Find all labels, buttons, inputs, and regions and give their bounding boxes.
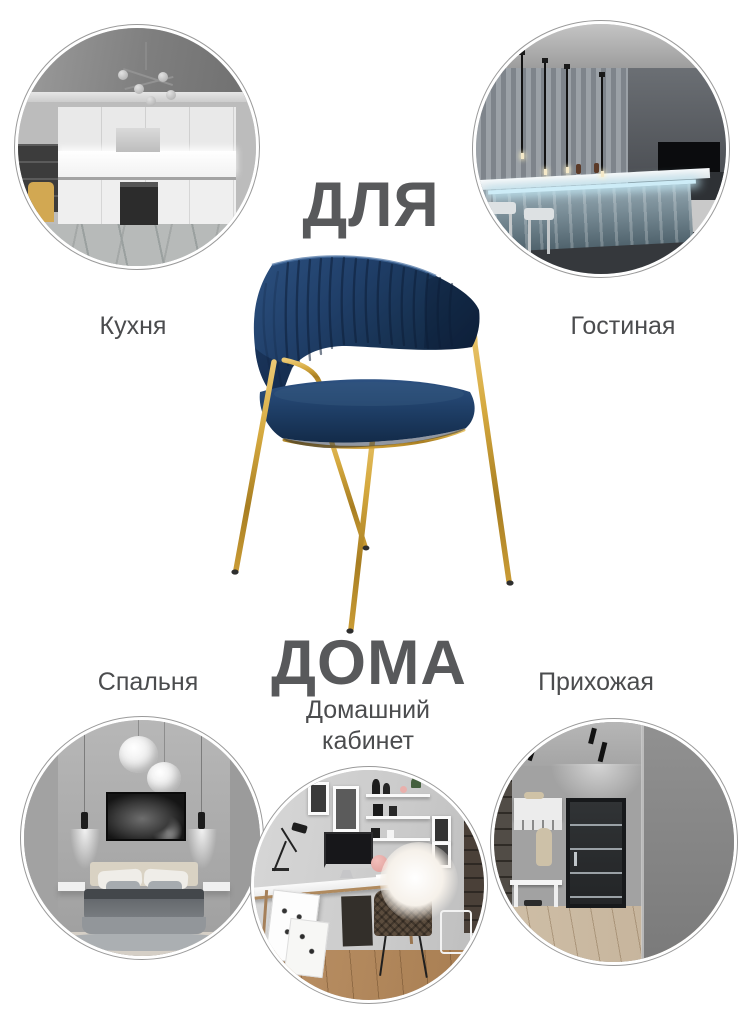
framed-portrait xyxy=(333,786,359,832)
bedroom-side-wall xyxy=(24,720,58,956)
bedside-pendant-cord xyxy=(84,726,85,812)
sphere-pendant-lamp xyxy=(147,762,181,794)
shelf-plant xyxy=(411,777,421,788)
under-desk-drawer xyxy=(341,895,373,946)
pendant-rod xyxy=(566,69,568,169)
desktop-monitor xyxy=(324,832,373,868)
home-office-label: Домашний кабинет xyxy=(293,695,443,756)
leaning-poster xyxy=(284,918,330,978)
bedside-pendant-lamp xyxy=(81,812,88,829)
home-office-photo xyxy=(254,770,484,1000)
pendant-light-tip xyxy=(544,169,547,175)
bedroom-photo-circle xyxy=(20,716,264,960)
counter-bottle xyxy=(576,164,581,174)
pendant-light-tip xyxy=(601,171,604,177)
counter-bottle xyxy=(594,163,599,173)
bedside-pendant-lamp xyxy=(198,812,205,829)
bench-leg xyxy=(514,885,518,907)
shoe-rack xyxy=(494,780,512,908)
shelf-box xyxy=(373,804,383,816)
wall-artwork xyxy=(106,792,186,841)
kitchen-hood xyxy=(116,128,160,152)
hanging-coat xyxy=(536,828,552,866)
pendant-rod xyxy=(601,77,603,173)
kitchen-photo-circle xyxy=(14,24,260,270)
shelf-box xyxy=(389,806,397,816)
bed-base xyxy=(82,917,206,934)
bedside-pendant-cord xyxy=(201,726,202,812)
bar-stool xyxy=(524,208,554,220)
living-room-label: Гостиная xyxy=(571,311,676,342)
bench-leg xyxy=(554,885,558,907)
framed-print xyxy=(308,782,329,815)
chair-gold-front-legs xyxy=(236,362,274,570)
chandelier-bulb xyxy=(134,84,144,94)
living-tv xyxy=(658,142,720,172)
kitchen-yellow-chair xyxy=(28,182,54,222)
wall-artwork-image xyxy=(108,794,184,839)
framed-print xyxy=(432,816,451,844)
shelf-mug xyxy=(387,830,394,838)
floating-nightstand xyxy=(203,882,230,891)
door-handle xyxy=(574,852,577,866)
product-chair-image xyxy=(224,248,520,644)
wall-shelf xyxy=(366,838,430,841)
floating-nightstand xyxy=(58,882,85,891)
pendant-rod xyxy=(544,63,546,171)
home-office-photo-circle xyxy=(250,766,488,1004)
pendant-light-tip xyxy=(521,153,524,159)
kitchen-label: Кухня xyxy=(100,311,167,342)
chair-feet xyxy=(231,546,513,634)
living-room-photo-circle xyxy=(472,20,730,278)
hallway-wardrobe-wall xyxy=(642,722,734,962)
bar-stool-legs xyxy=(528,220,550,254)
chair-backrest xyxy=(254,256,480,400)
shelf-vase xyxy=(372,779,380,794)
bar-stool-legs xyxy=(490,214,512,248)
chandelier-stem xyxy=(145,42,147,70)
front-door xyxy=(570,802,622,904)
wire-side-table xyxy=(440,910,472,954)
bar-stool xyxy=(486,202,516,214)
kitchen-backsplash xyxy=(58,151,236,178)
bar-counter-base xyxy=(493,184,694,252)
kitchen-oven xyxy=(120,182,158,225)
pendant-light-tip xyxy=(566,167,569,173)
hallway-photo-circle xyxy=(490,718,738,966)
bedroom-photo xyxy=(24,720,260,956)
headline-dlya: ДЛЯ xyxy=(302,174,439,237)
bedroom-label: Спальня xyxy=(98,667,198,698)
sheepskin-throw xyxy=(380,842,458,922)
pendant-rod xyxy=(521,55,523,155)
wall-shelf xyxy=(366,794,430,797)
shelf-hat xyxy=(524,792,544,799)
infographic-canvas: ДЛЯ ДОМА Кухня Гостиная Спальня Домашний… xyxy=(0,0,740,1032)
kitchen-tile-floor xyxy=(18,224,256,266)
chandelier-bulb xyxy=(118,70,128,80)
pendant-cord xyxy=(164,720,165,764)
wall-shelf xyxy=(366,816,430,819)
shoes-under-bench xyxy=(524,900,542,906)
chandelier-bulb xyxy=(146,96,156,106)
bed-blanket-fold xyxy=(84,889,204,899)
chandelier-bulb xyxy=(158,72,168,82)
shelf-vase xyxy=(383,783,390,794)
bedroom-rug xyxy=(52,933,234,951)
pink-ornament xyxy=(400,786,407,793)
hallway-label: Прихожая xyxy=(538,667,654,698)
chandelier-bulb xyxy=(166,90,176,100)
living-room-photo xyxy=(476,24,726,274)
hallway-photo xyxy=(494,722,734,962)
kitchen-photo xyxy=(18,28,256,266)
wall-shelf-panel xyxy=(514,798,562,820)
wardrobe-mirror-edge xyxy=(641,722,644,962)
